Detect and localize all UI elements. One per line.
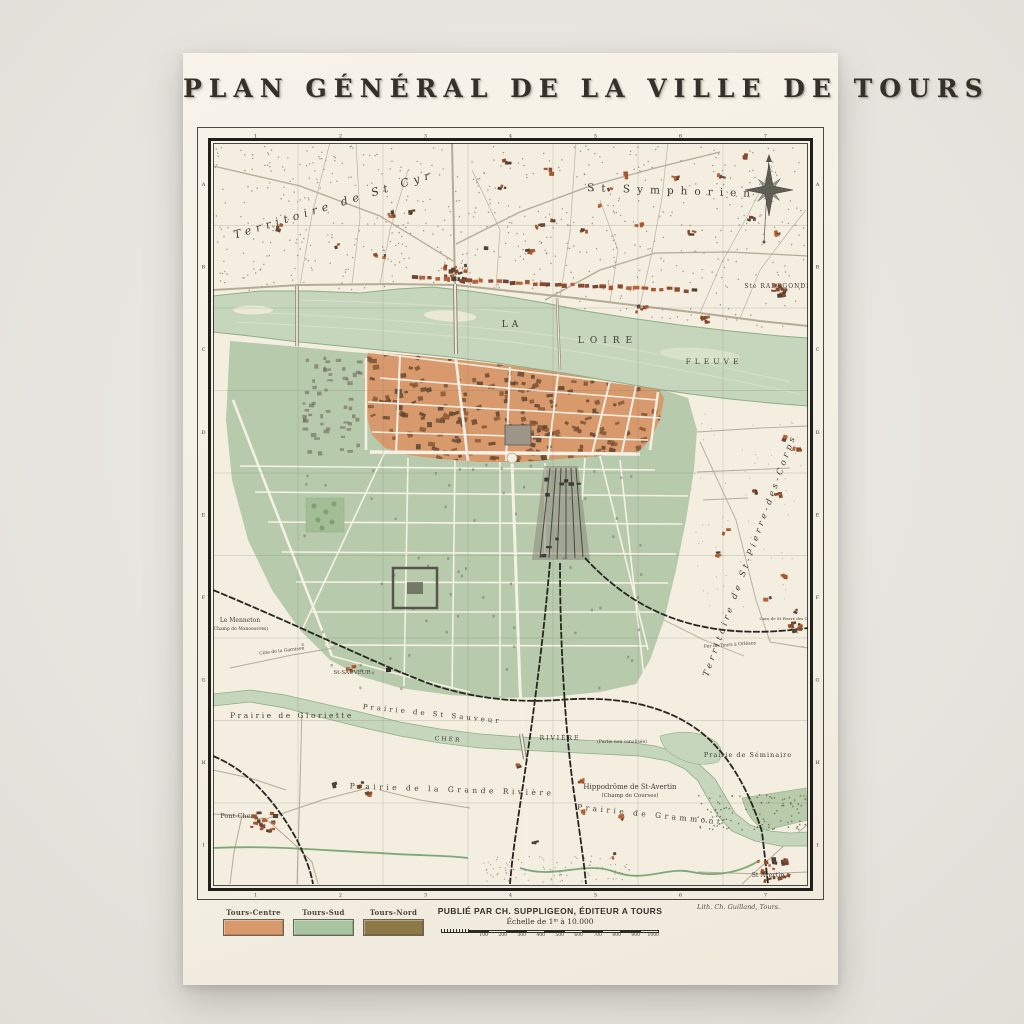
svg-text:1: 1 (254, 893, 257, 899)
scene: Territoire de St Cyr St Symphorien Ste R… (0, 0, 1024, 1024)
legend: Tours-Centre Tours-Sud Tours-Nord (223, 908, 424, 936)
label-la: LA (502, 320, 522, 330)
scale-ticks: 1002003004005006007008009001000 (441, 933, 659, 938)
svg-text:H: H (201, 760, 206, 766)
boulevard (370, 452, 640, 454)
svg-text:5: 5 (594, 134, 597, 140)
svg-text:2: 2 (339, 893, 342, 899)
legend-label: Tours-Sud (293, 908, 354, 917)
svg-text:7: 7 (764, 893, 767, 899)
svg-text:2: 2 (339, 134, 342, 140)
svg-text:B: B (816, 265, 820, 271)
svg-text:E: E (202, 512, 206, 518)
garden (306, 498, 344, 532)
svg-text:E: E (816, 512, 820, 518)
label-riviere: RIVIÈRE (540, 734, 581, 742)
label-ste-radegonde: Ste RADEGONDE (744, 283, 811, 290)
svg-text:5: 5 (594, 893, 597, 899)
label-hippodrome: Hippodrôme de St-Avertin (583, 783, 677, 791)
st-sauveur-halt (386, 668, 391, 672)
map-canvas: Territoire de St Cyr St Symphorien Ste R… (0, 0, 1024, 1024)
label-loire: LOIRE (578, 336, 638, 346)
barracks-court (407, 582, 423, 594)
poster-title: PLAN GÉNÉRAL DE LA VILLE DE TOURS (183, 74, 838, 103)
scale-line: Échelle de 1ᵐ à 10.000 (430, 917, 670, 926)
legend-label: Tours-Centre (223, 908, 284, 917)
place-circle (507, 453, 517, 463)
svg-text:A: A (201, 182, 206, 188)
svg-text:1: 1 (254, 134, 257, 140)
sandbar-2 (233, 306, 273, 315)
svg-text:4: 4 (509, 134, 512, 140)
legend-item-tours-nord: Tours-Nord (363, 908, 424, 936)
svg-text:H: H (815, 760, 820, 766)
svg-text:4: 4 (509, 893, 512, 899)
svg-text:6: 6 (679, 134, 682, 140)
legend-swatch-tours-nord (363, 919, 424, 936)
svg-text:I: I (817, 843, 819, 849)
svg-text:A: A (815, 182, 820, 188)
legend-swatch-tours-centre (223, 919, 284, 936)
lithographer-credit: Lith. Ch. Guilland, Tours. (697, 903, 780, 911)
publisher-line: PUBLIÉ PAR CH. SUPPLIGEON, ÉDITEUR A TOU… (430, 906, 670, 916)
svg-text:C: C (816, 347, 820, 353)
legend-item-tours-sud: Tours-Sud (293, 908, 354, 936)
svg-text:D: D (201, 430, 205, 436)
svg-text:B: B (202, 265, 206, 271)
svg-text:G: G (202, 677, 206, 683)
label-prairie-gloriette: Prairie de Gloriette (230, 711, 354, 720)
label-champ-manoeuvres: (Champ de Manoeuvres) (212, 625, 268, 632)
svg-text:F: F (816, 595, 820, 601)
map-content: Territoire de St Cyr St Symphorien Ste R… (212, 142, 817, 886)
svg-text:3: 3 (424, 134, 427, 140)
svg-text:7: 7 (764, 134, 767, 140)
label-pont-cher: Pont-Cher (220, 812, 254, 820)
svg-text:D: D (815, 430, 819, 436)
label-champ-courses: (Champ de Courses) (602, 792, 659, 799)
legend-swatch-tours-sud (293, 919, 354, 936)
label-st-sauveur: St-SAUVEUR (334, 670, 372, 676)
svg-text:6: 6 (679, 893, 682, 899)
legend-item-tours-centre: Tours-Centre (223, 908, 284, 936)
publisher-block: PUBLIÉ PAR CH. SUPPLIGEON, ÉDITEUR A TOU… (430, 906, 670, 938)
label-gare-st-pierre: Gare de St Pierre des Corps (760, 616, 817, 621)
label-le-menneton: Le Menneton (220, 617, 260, 624)
label-fleuve: FLEUVE (686, 357, 743, 366)
label-partie-non-canalisee: (Partie non canalisée) (597, 738, 647, 745)
legend-label: Tours-Nord (363, 908, 424, 917)
svg-text:3: 3 (424, 893, 427, 899)
label-prairie-seminaire: Prairie de Séminaire (704, 751, 792, 759)
svg-text:I: I (203, 843, 205, 849)
svg-text:C: C (202, 347, 206, 353)
market-hall (505, 425, 531, 445)
svg-text:G: G (816, 677, 820, 683)
label-st-avertin: St Avertin (751, 871, 784, 879)
svg-text:F: F (202, 595, 206, 601)
